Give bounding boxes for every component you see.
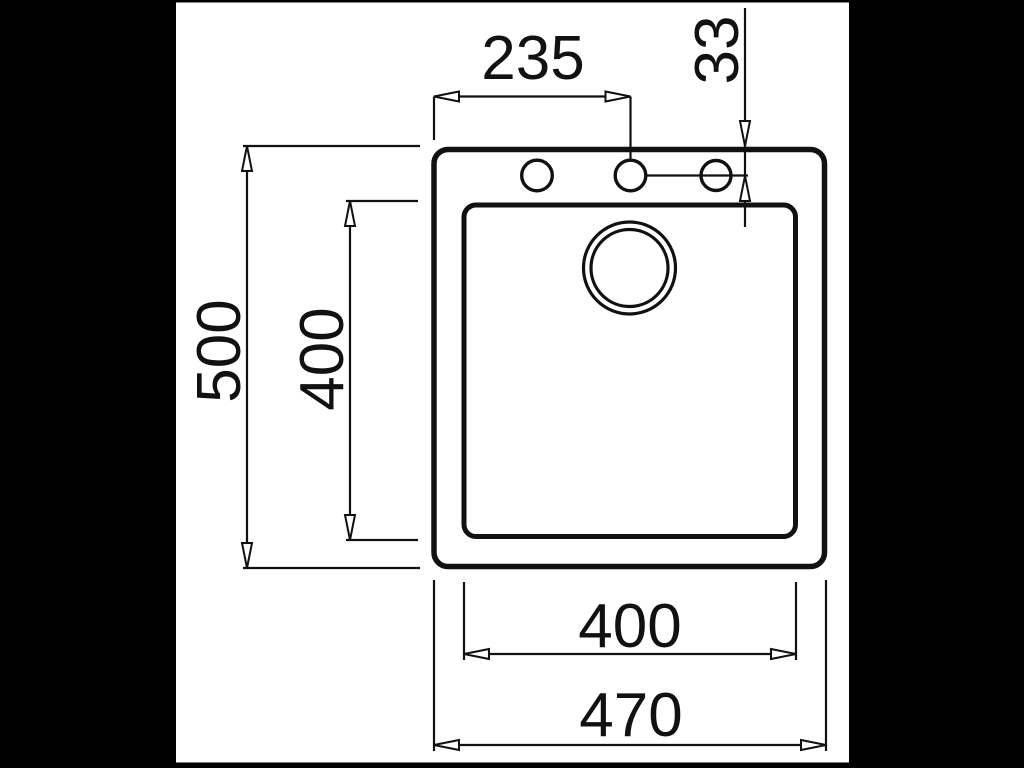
tap-hole-center	[615, 160, 646, 191]
page: 235 33 500 400	[0, 0, 1024, 768]
bowl-width-label: 400	[578, 592, 681, 661]
overall-depth-label: 500	[185, 299, 254, 402]
overall-width-label: 470	[579, 681, 682, 750]
tap-offset-y-label: 33	[683, 16, 752, 85]
drawing-canvas	[176, 3, 849, 763]
bowl-depth-label: 400	[288, 307, 357, 410]
tap-offset-x-label: 235	[481, 24, 584, 93]
sink-technical-drawing: 235 33 500 400	[0, 0, 1024, 768]
tap-hole-left	[522, 160, 553, 191]
